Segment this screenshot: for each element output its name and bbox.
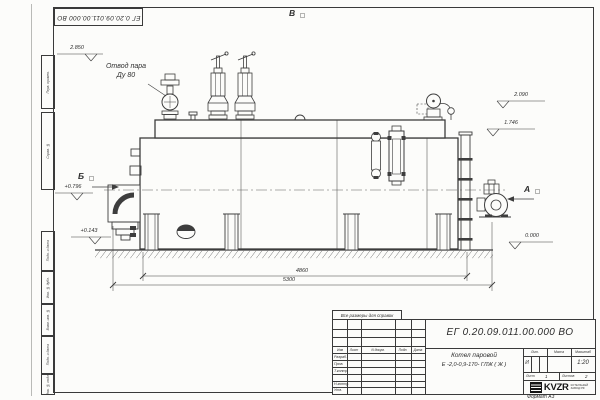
elevation-2850: 2.850 xyxy=(57,45,97,51)
scale-value: 1:20 xyxy=(571,360,595,366)
title-block: ЕГ 0.20.09.011.00.000 ВО Котел паровой Е… xyxy=(332,319,596,395)
product-name-line2: Е -2,0-0,9-170- ГЛЖ ( Ж ) xyxy=(425,362,523,368)
logo-subtext-line2: ЗАВОД РФ xyxy=(571,387,589,390)
sheets-value: 2 xyxy=(585,374,587,379)
elevation-0000: 0.000 xyxy=(510,233,554,239)
product-name-line1: Котел паровой xyxy=(425,352,523,359)
margin-cell-podp-data-1: Подп. и дата xyxy=(41,231,55,271)
reference-note-text: Все размеры для справок xyxy=(341,313,394,318)
designation-stamp-text: ЕГ 0.20.09.011.00.000 ВО xyxy=(57,14,140,21)
drawing-sheet: ЕГ 0.20.09.011.00.000 ВО Перв. примен. С… xyxy=(0,0,600,400)
margin-cell-perv-primen: Перв. примен. xyxy=(41,55,55,109)
view-marker-b: Б xyxy=(78,171,84,181)
title-designation: ЕГ 0.20.09.011.00.000 ВО xyxy=(425,327,595,338)
mass-label: Масса xyxy=(547,350,571,354)
margin-cell-vzam-inv: Взам. инв. № xyxy=(41,304,55,336)
logo-text: KVZR xyxy=(544,382,569,393)
elevation-2090: 2.090 xyxy=(500,92,542,98)
lit-label: Лит. xyxy=(523,350,547,354)
row-razrab: Разраб. xyxy=(334,355,347,359)
row-nkontr: Н.контр. xyxy=(334,382,349,386)
elevation-1746: 1.746 xyxy=(490,120,532,126)
elevation-plus0143: +0.143 xyxy=(66,228,112,234)
manufacturer-logo: KVZR КОТЕЛЬНЫЙ ЗАВОД РФ xyxy=(524,381,594,394)
steam-outlet-label-line2: Ду 80 xyxy=(98,72,154,79)
margin-cell-inv-dubl: Инв. № дубл. xyxy=(41,271,55,304)
col-header-list: Лист xyxy=(347,348,361,352)
margin-cell-inv-podl: Инв. № подл. xyxy=(41,374,55,395)
format-note: Формат А3 xyxy=(527,394,554,400)
row-tkontr: Т.контр. xyxy=(334,369,349,373)
row-utv: Утв. xyxy=(334,388,342,392)
logo-coil-icon xyxy=(530,382,542,393)
scale-label: Масштаб xyxy=(571,350,595,354)
sheet-value: 1 xyxy=(545,374,547,379)
col-header-ndoc: N докум. xyxy=(361,348,395,352)
paper-trim-line xyxy=(31,4,32,396)
view-marker-a: А xyxy=(524,184,530,194)
view-marker-b-square xyxy=(89,176,94,181)
lit-value: И xyxy=(523,360,531,366)
designation-stamp-rotated: ЕГ 0.20.09.011.00.000 ВО xyxy=(54,8,143,26)
dimension-5300: 5300 xyxy=(272,277,306,283)
col-header-podp: Подп. xyxy=(395,348,411,352)
col-header-izm: Изм xyxy=(333,348,347,352)
row-prov: Пров. xyxy=(334,362,343,366)
view-marker-a-square xyxy=(535,189,540,194)
dimension-4860: 4860 xyxy=(286,268,318,274)
elevation-plus0796: +0.796 xyxy=(52,184,94,190)
steam-outlet-label-line1: Отвод пара xyxy=(98,63,154,70)
margin-cell-sprav-no: Справ. № xyxy=(41,112,55,190)
margin-cell-podp-data-2: Подп. и дата xyxy=(41,336,55,374)
col-header-data: Дата xyxy=(411,348,425,352)
sheet-label: Лист xyxy=(526,374,535,378)
view-marker-v: В xyxy=(289,8,295,18)
sheets-label: Листов xyxy=(562,374,574,378)
view-marker-v-square xyxy=(300,13,305,18)
